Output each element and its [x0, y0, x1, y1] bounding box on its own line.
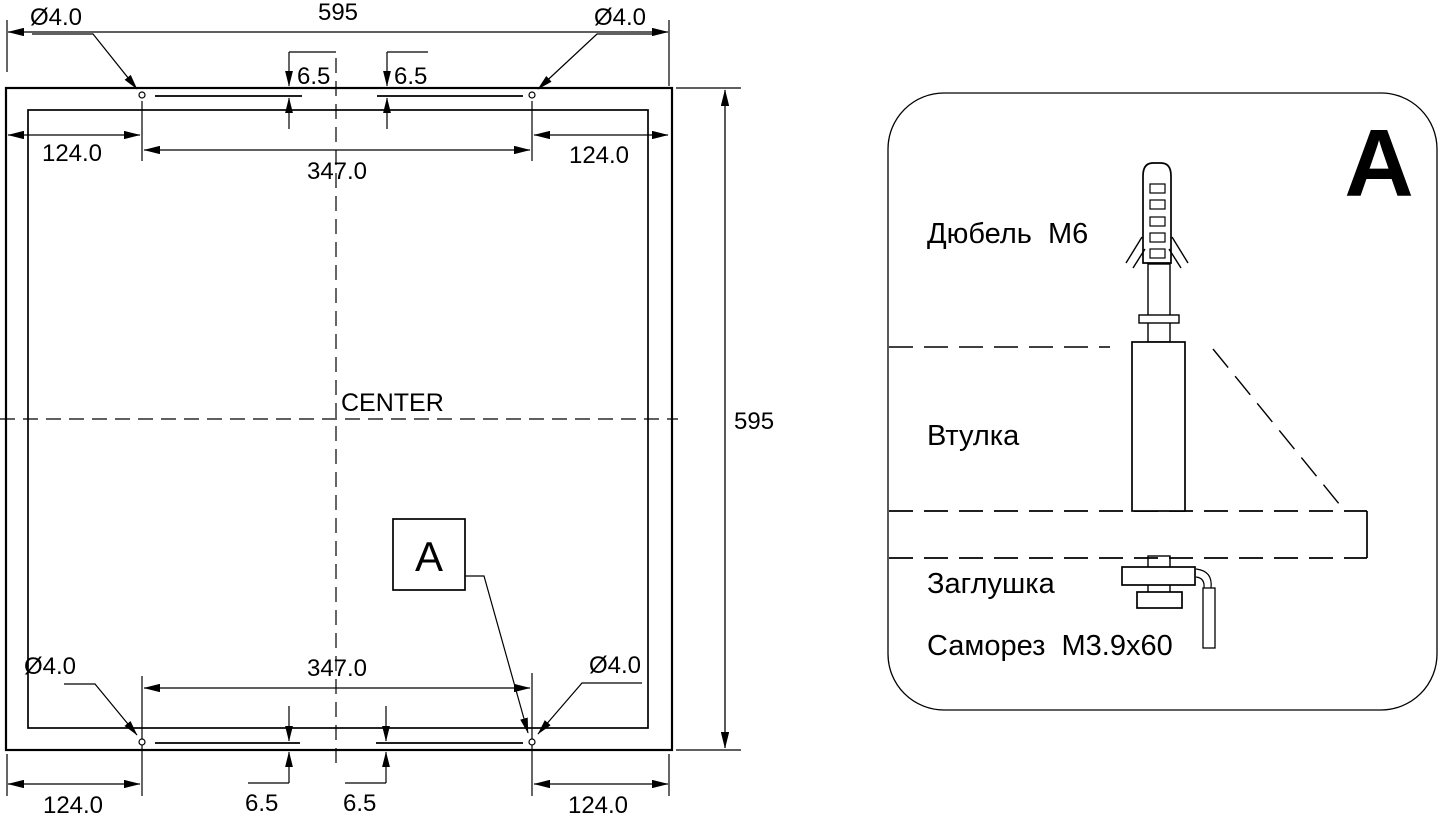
hole-callout-bottom-right: Ø4.0: [538, 652, 642, 734]
detail-callout-leader: [465, 576, 528, 733]
screw-upper-shaft: [1139, 264, 1179, 342]
label-dowel: Дюбель М6: [927, 218, 1088, 250]
hole-diameter-label: Ø4.0: [594, 4, 646, 31]
offset-bottom-left-label: 124.0: [43, 792, 103, 816]
detail-callout-letter: A: [415, 533, 443, 580]
label-bushing: Втулка: [927, 420, 1020, 452]
label-screw: Саморез М3.9х60: [927, 630, 1173, 662]
center-label: CENTER: [341, 389, 444, 417]
slot-dim-top-left: 6.5: [289, 52, 336, 129]
span-bottom-label: 347.0: [307, 655, 367, 682]
detail-view-letter: A: [1344, 110, 1413, 217]
slot-dim-bottom-left: 6.5: [245, 706, 289, 816]
bushing-graphic: [1132, 342, 1185, 511]
slot-dim-top-right: 6.5: [387, 52, 428, 129]
svg-text:6.5: 6.5: [297, 63, 330, 90]
hole-callout-top-left: Ø4.0: [30, 4, 137, 89]
frame-bar: [889, 511, 1367, 558]
hole-diameter-label: Ø4.0: [30, 4, 82, 31]
slot-dim-bottom-right: 6.5: [343, 706, 386, 816]
mounting-drawing-sheet: 595 595 124.0 124.0 347.0 6.5 6.5 Ø4.0: [0, 0, 1440, 816]
screw-side-view: [1203, 588, 1215, 648]
offset-top-left-label: 124.0: [42, 140, 102, 167]
dim-width-top-label: 595: [318, 0, 358, 26]
hole-callout-bottom-left: Ø4.0: [24, 653, 137, 735]
hole-diameter-label: Ø4.0: [589, 652, 641, 679]
detail-view-a: A: [888, 93, 1437, 710]
offset-bottom-right-label: 124.0: [568, 792, 628, 816]
svg-text:6.5: 6.5: [394, 63, 427, 90]
ceiling-cut-diagonal: [1213, 349, 1344, 510]
hole-diameter-label: Ø4.0: [24, 653, 76, 680]
blueprint-svg: 595 595 124.0 124.0 347.0 6.5 6.5 Ø4.0: [0, 0, 1440, 816]
offset-top-right-label: 124.0: [569, 142, 629, 169]
svg-text:6.5: 6.5: [343, 790, 376, 816]
panel-plan-view: 595 595 124.0 124.0 347.0 6.5 6.5 Ø4.0: [0, 0, 774, 816]
hole-callout-top-right: Ø4.0: [538, 4, 655, 89]
dim-height-right-label: 595: [734, 408, 774, 435]
span-top-label: 347.0: [307, 158, 367, 185]
dowel-graphic: [1126, 163, 1188, 268]
label-plug: Заглушка: [927, 568, 1056, 600]
svg-text:6.5: 6.5: [245, 790, 278, 816]
